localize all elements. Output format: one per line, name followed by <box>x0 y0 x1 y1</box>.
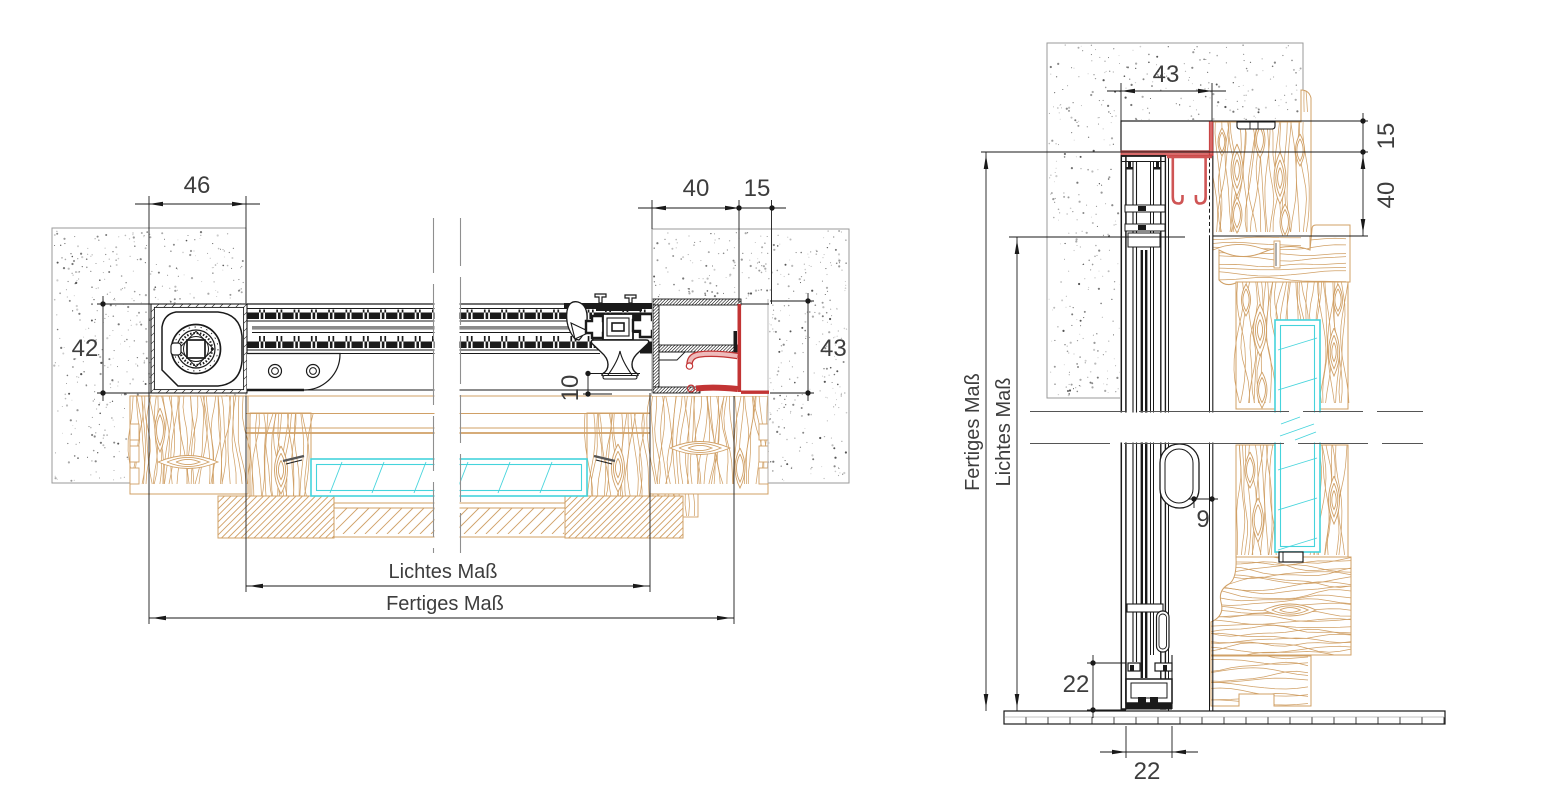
svg-text:Lichtes Maß: Lichtes Maß <box>389 561 498 583</box>
svg-text:43: 43 <box>1153 61 1180 88</box>
svg-text:9: 9 <box>1196 506 1209 533</box>
svg-text:10: 10 <box>557 375 584 402</box>
svg-text:Fertiges Maß: Fertiges Maß <box>386 593 504 615</box>
svg-text:42: 42 <box>72 335 99 362</box>
svg-text:46: 46 <box>184 172 211 199</box>
svg-text:40: 40 <box>1373 182 1400 209</box>
svg-text:22: 22 <box>1063 671 1090 698</box>
svg-text:15: 15 <box>744 175 771 202</box>
svg-text:Lichtes Maß: Lichtes Maß <box>993 378 1015 487</box>
svg-text:22: 22 <box>1134 758 1161 785</box>
svg-text:15: 15 <box>1373 123 1400 150</box>
svg-text:43: 43 <box>820 335 847 362</box>
svg-text:Fertiges Maß: Fertiges Maß <box>962 373 984 491</box>
svg-text:40: 40 <box>683 175 710 202</box>
